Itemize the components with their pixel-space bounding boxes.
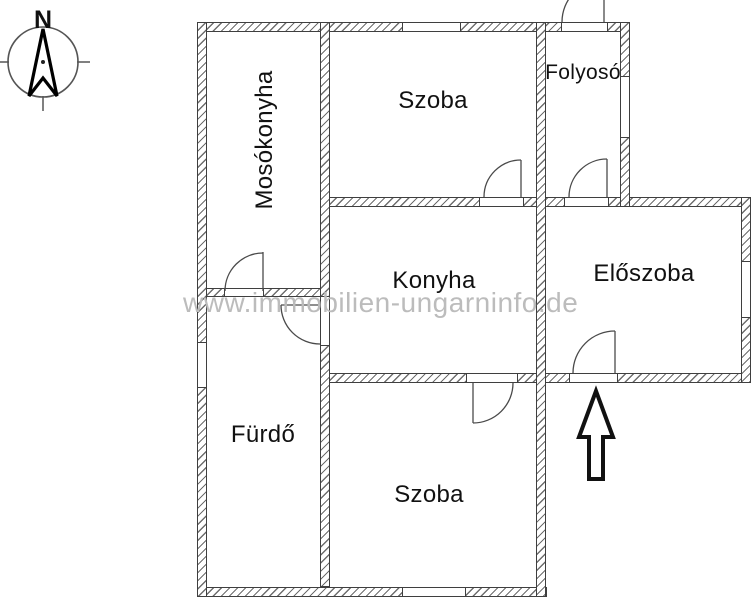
floor-plan: N Mosókonyha Szoba Folyosó Konyha Előszo…: [0, 0, 751, 600]
door-arc: [569, 159, 607, 197]
room-label-folyoso: Folyosó: [545, 61, 621, 85]
room-label-szoba-top: Szoba: [398, 87, 468, 115]
compass-n-label: N: [34, 6, 52, 34]
door-arc: [484, 160, 521, 197]
room-label-furdo: Fürdő: [231, 421, 295, 449]
room-label-mosokonyha: Mosókonyha: [251, 70, 279, 209]
room-label-szoba-bottom: Szoba: [394, 481, 464, 509]
compass-north-icon: N: [0, 0, 100, 118]
door-arc: [225, 253, 263, 291]
room-label-eloszoba: Előszoba: [593, 260, 694, 288]
watermark: www.immobilien-ungarninfo.de: [183, 287, 578, 319]
door-arc: [473, 383, 513, 423]
door-arc: [573, 331, 615, 373]
entrance-arrow-icon: [570, 383, 625, 488]
door-arc: [562, 0, 604, 22]
